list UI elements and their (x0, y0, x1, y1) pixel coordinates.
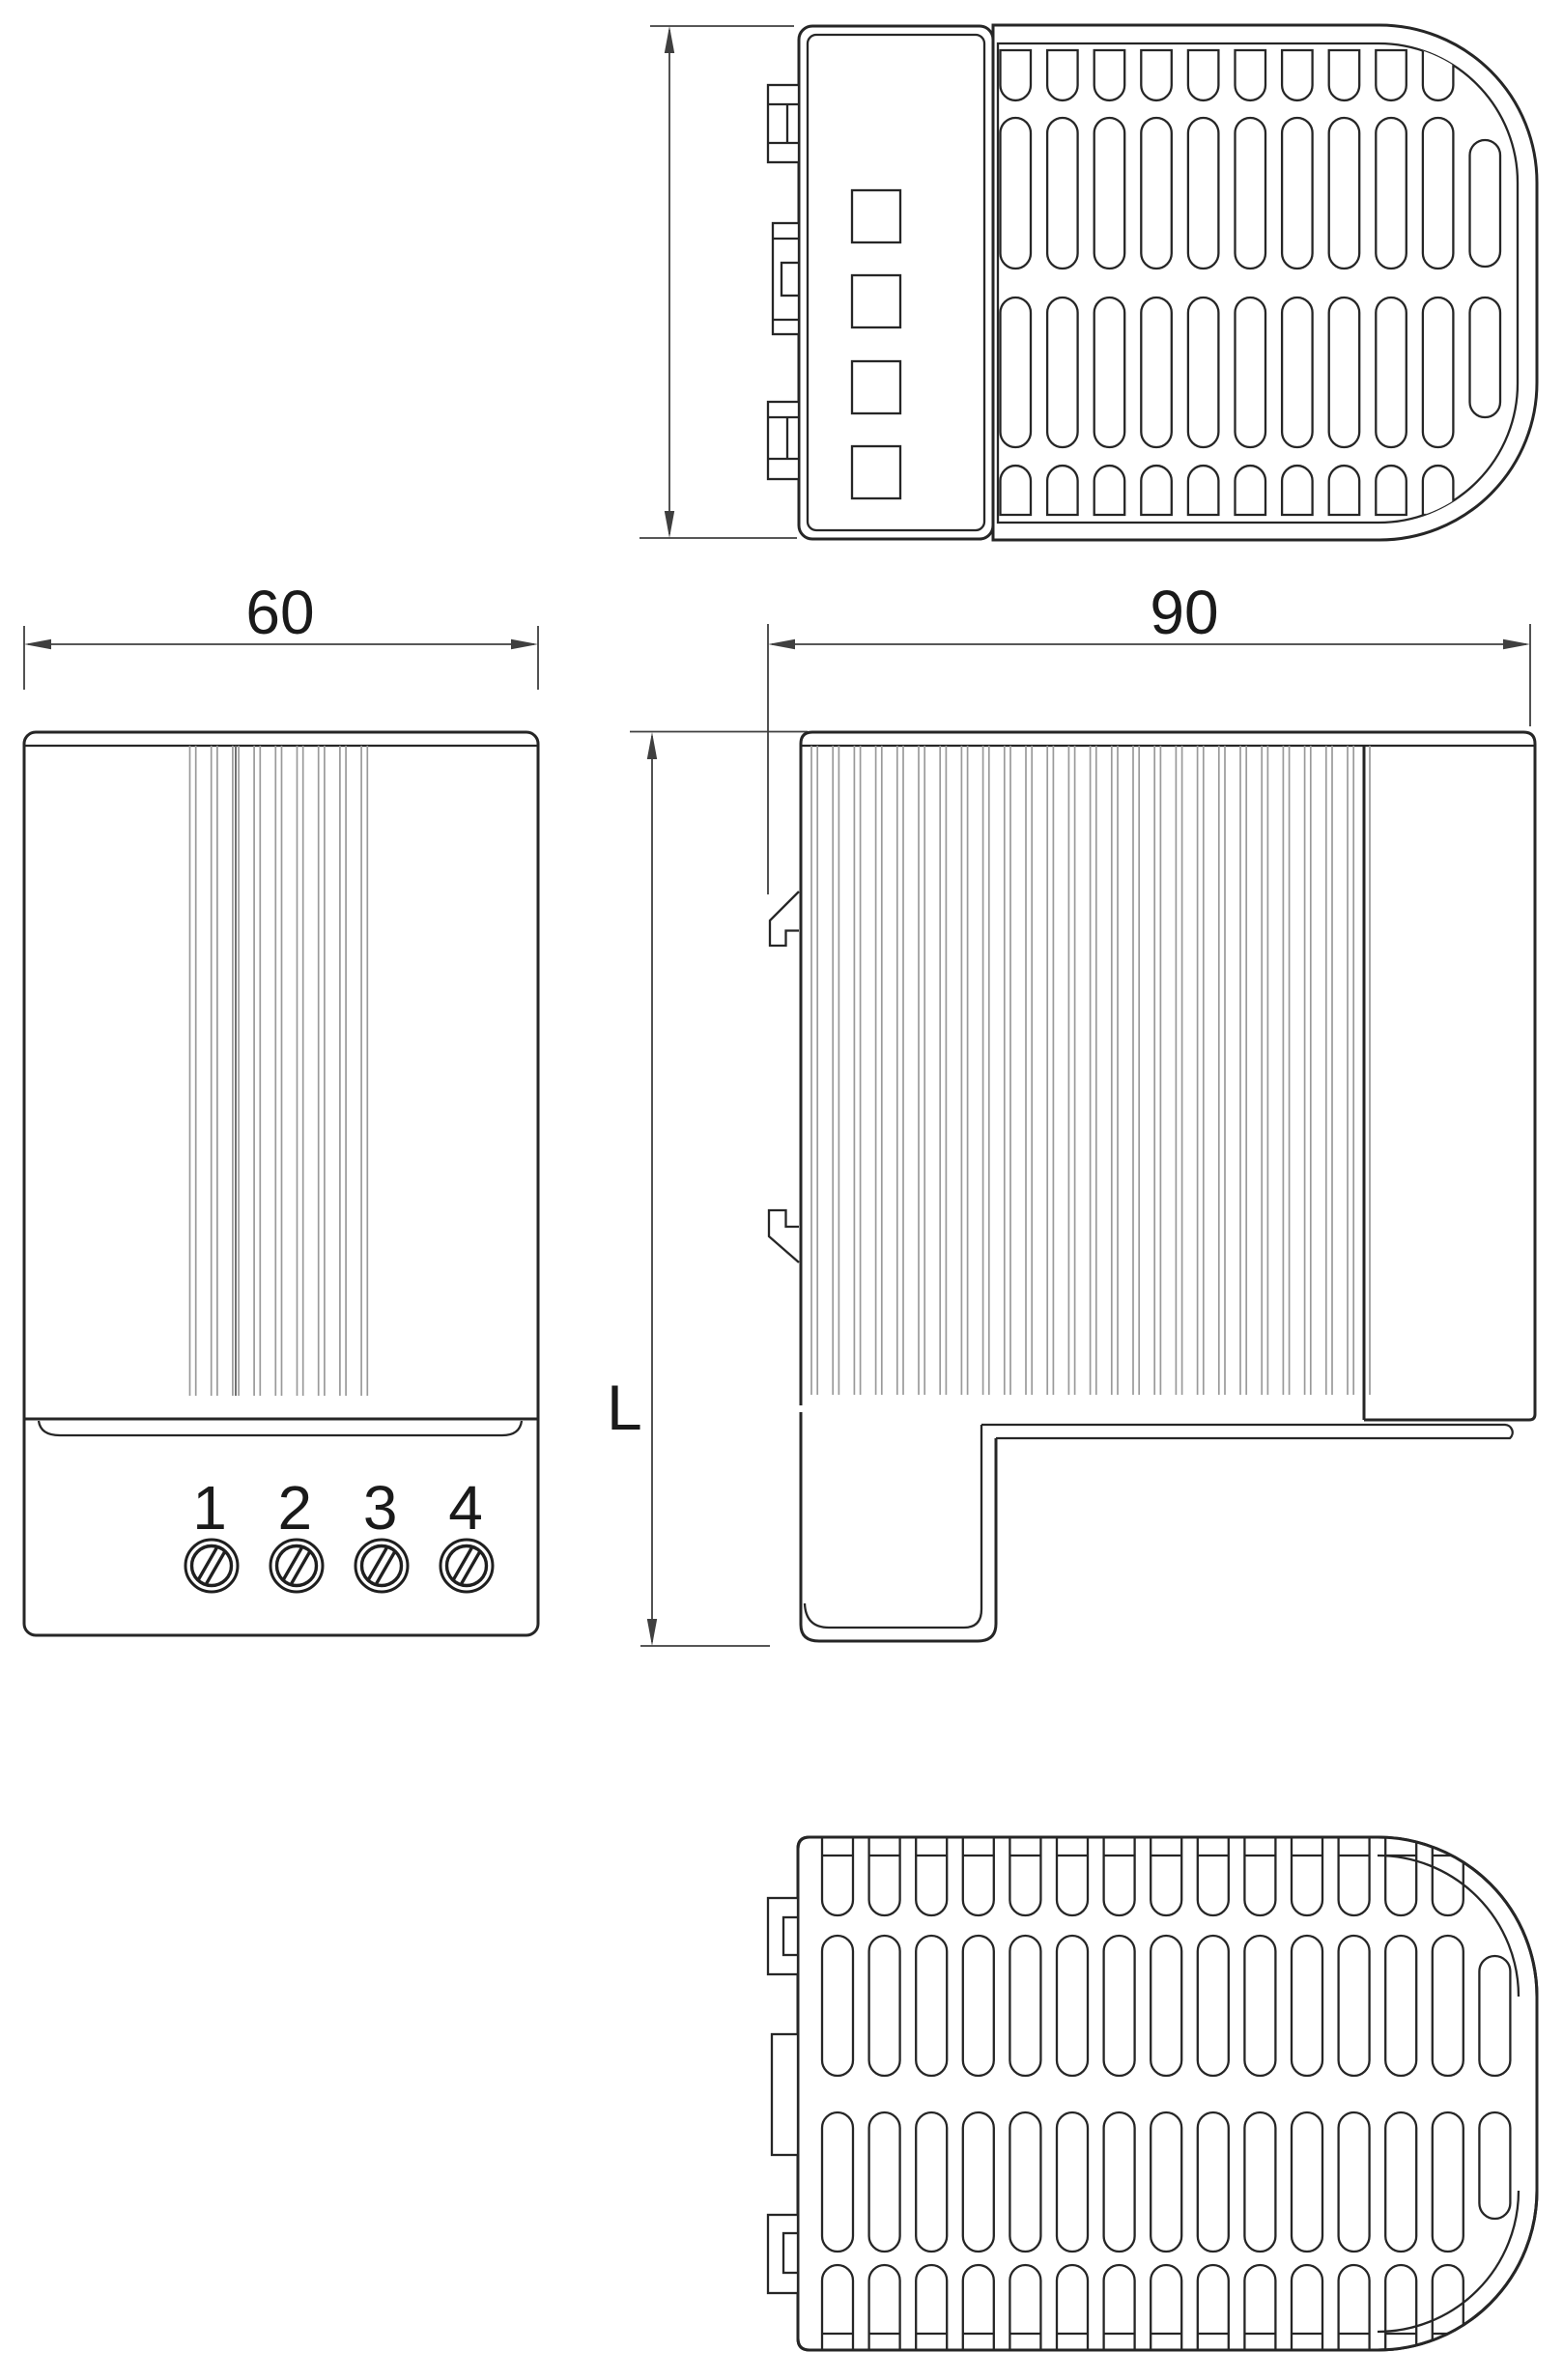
svg-text:90: 90 (1150, 578, 1218, 647)
svg-text:L: L (607, 1372, 642, 1443)
svg-text:60: 60 (245, 578, 314, 647)
svg-text:4: 4 (448, 1473, 483, 1543)
svg-text:2: 2 (278, 1473, 313, 1543)
svg-text:3: 3 (363, 1473, 398, 1543)
svg-text:1: 1 (192, 1473, 227, 1543)
